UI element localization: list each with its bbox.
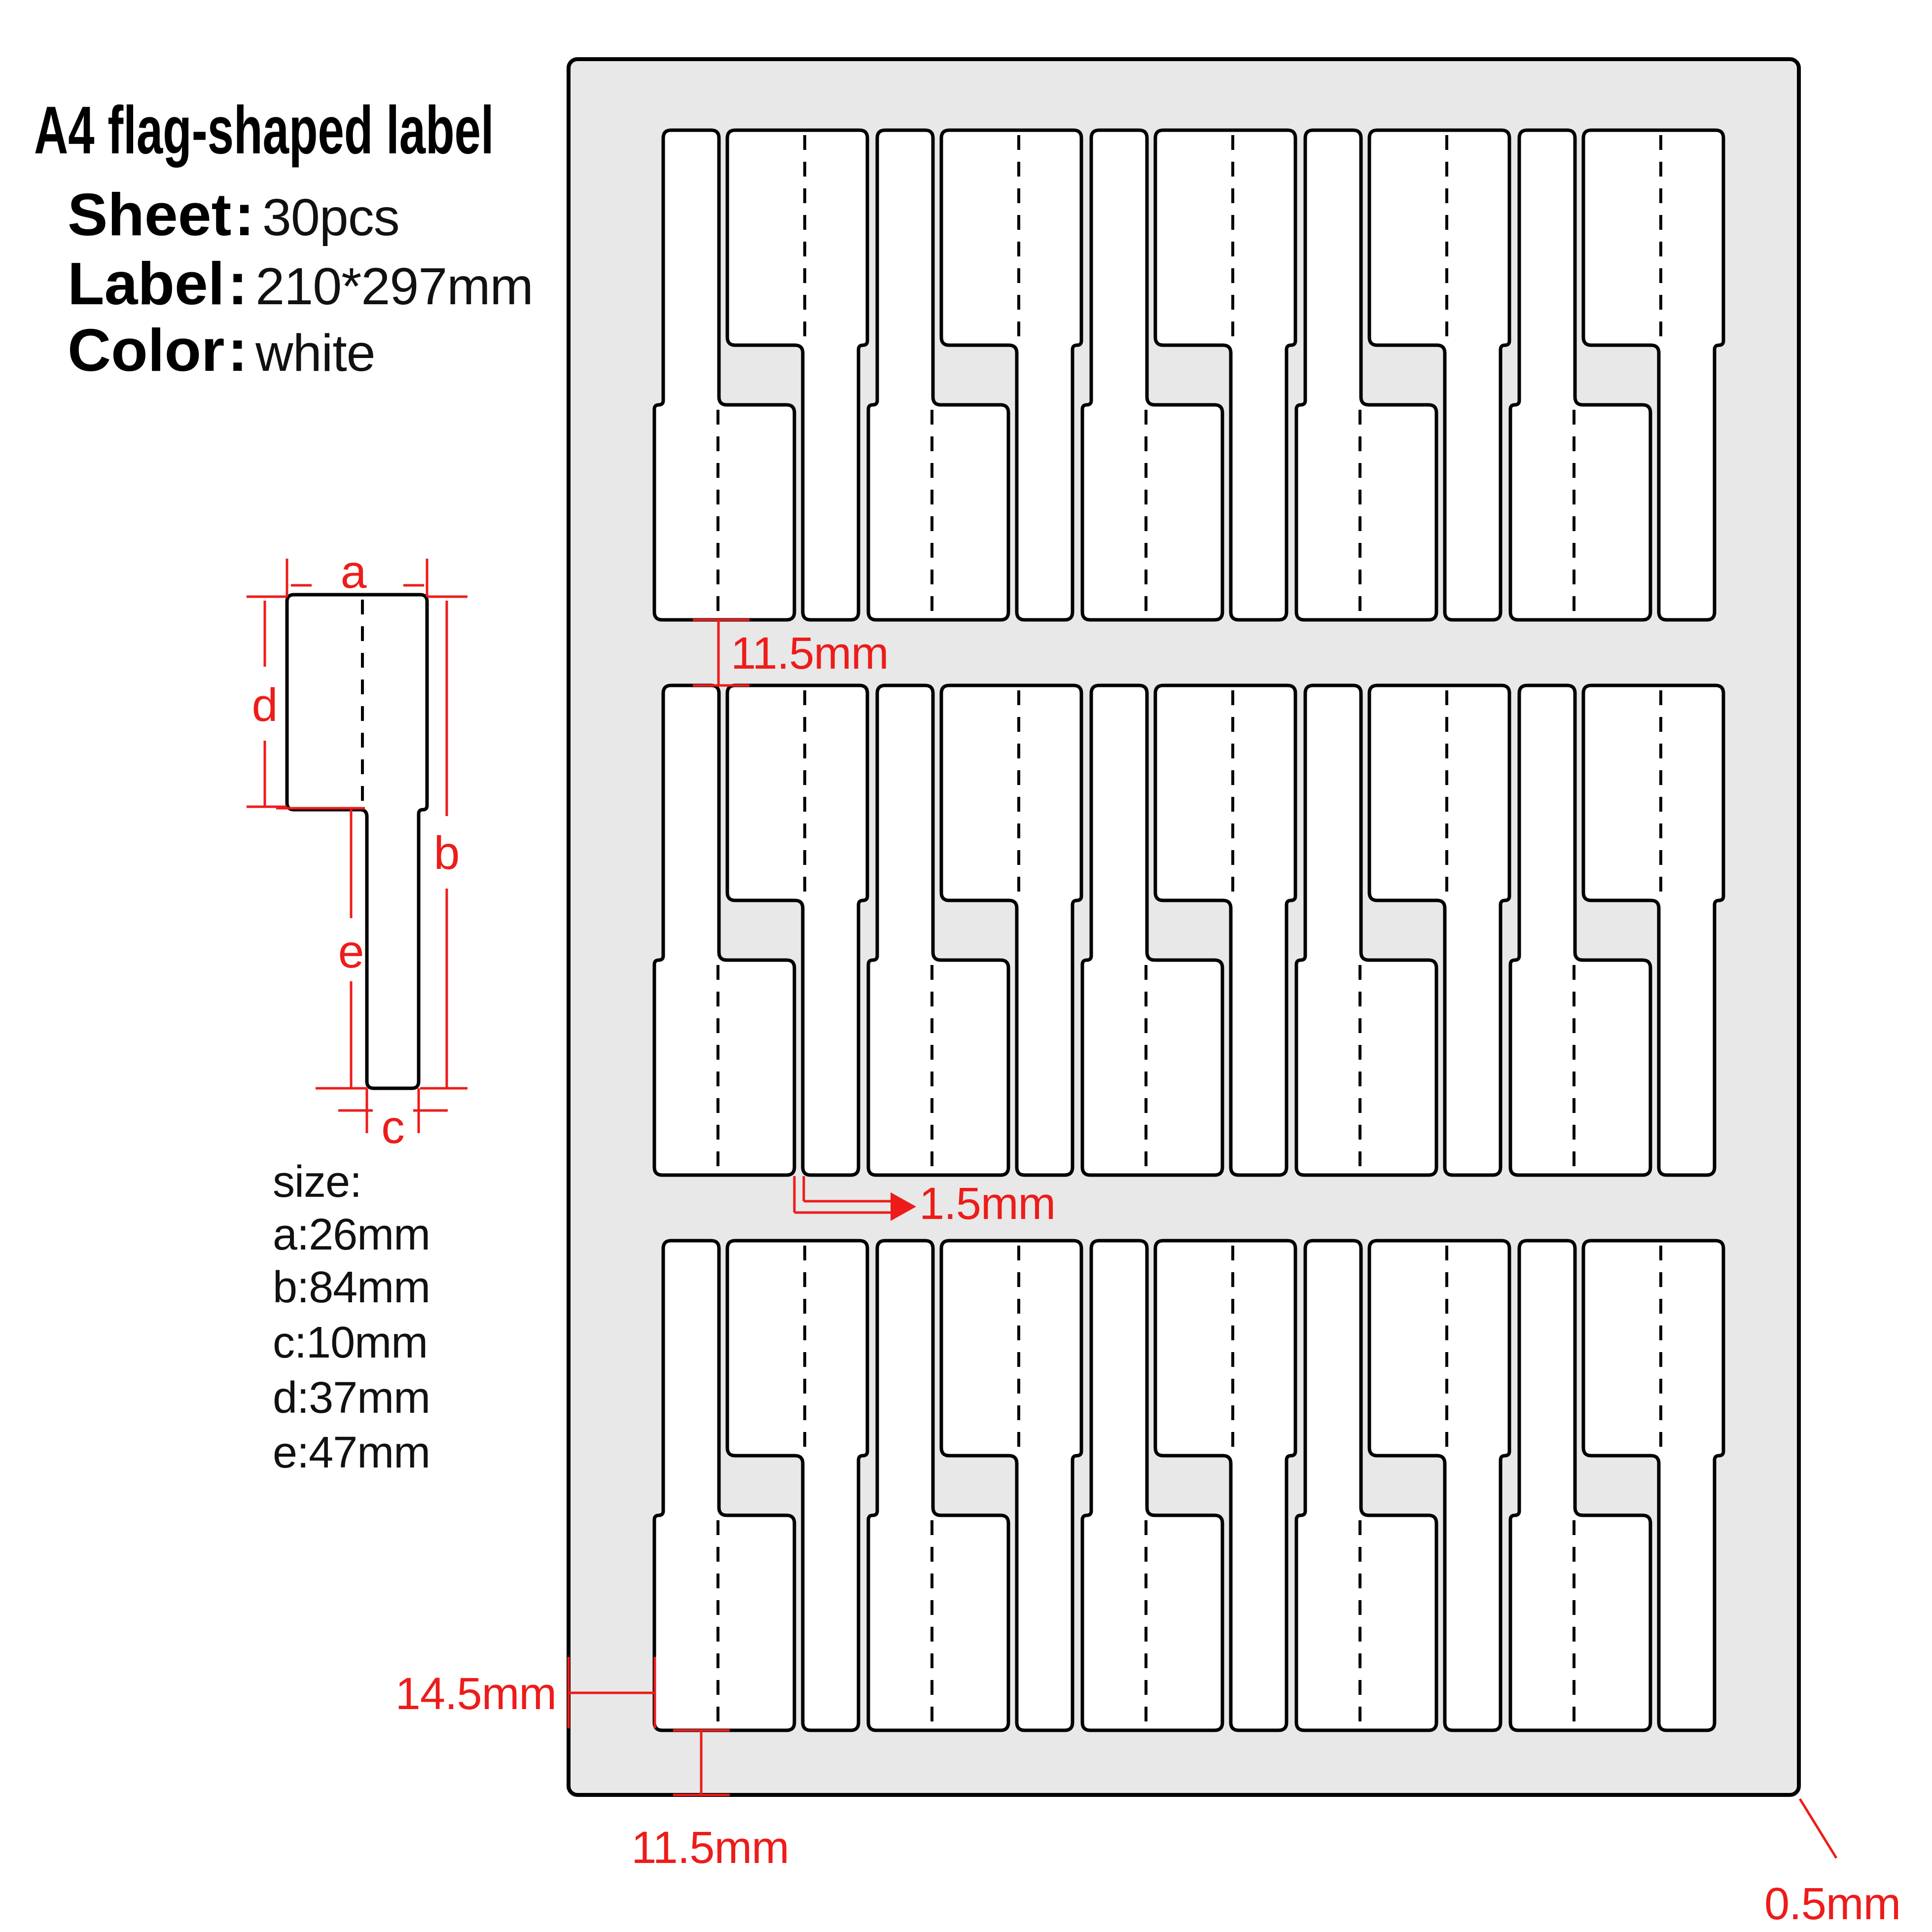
- dim-c: c: [338, 1088, 448, 1153]
- dim-a-letter: a: [341, 546, 367, 598]
- diagram-label-outline: [287, 595, 427, 1088]
- dim-e: e: [276, 808, 367, 1088]
- dim-corner: 0.5mm: [1764, 1799, 1900, 1929]
- dim-left-margin-text: 14.5mm: [395, 1669, 556, 1719]
- dim-c-letter: c: [381, 1101, 405, 1153]
- dim-bottom-margin-text: 11.5mm: [631, 1823, 789, 1873]
- dim-stem-offset-text: 1.5mm: [919, 1179, 1055, 1229]
- dim-row-gap-text: 11.5mm: [731, 628, 889, 679]
- dim-d-letter: d: [252, 679, 278, 731]
- single-label-diagram: [287, 595, 427, 1088]
- dim-corner-text: 0.5mm: [1764, 1879, 1900, 1929]
- page: A4 flag-shaped label Sheet:30pcs Label:2…: [0, 0, 1932, 1932]
- drawing: a d b e c: [0, 0, 1932, 1932]
- dim-a: a: [247, 546, 467, 598]
- dim-b-letter: b: [434, 827, 460, 879]
- dim-d: d: [247, 601, 287, 807]
- dim-e-letter: e: [338, 926, 364, 978]
